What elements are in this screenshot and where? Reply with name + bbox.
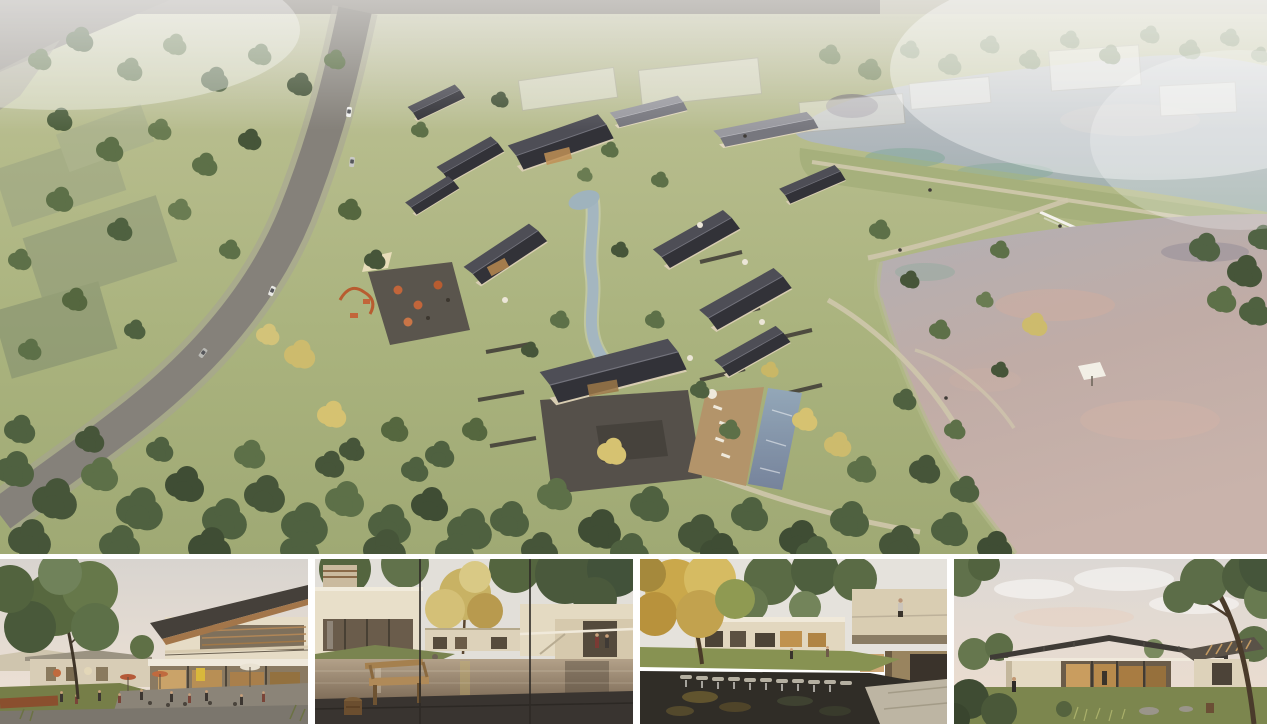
wooden-stool xyxy=(344,697,362,715)
presentation-board xyxy=(0,0,1267,724)
walking-person xyxy=(1012,677,1016,692)
aerial-view-panel xyxy=(0,0,1267,554)
yellow-sign xyxy=(196,668,205,681)
street-cafe-image xyxy=(0,559,308,724)
garden-pond-image xyxy=(640,559,947,724)
small-tree xyxy=(130,635,154,659)
pavilion-panel xyxy=(954,559,1267,724)
right-buildings xyxy=(520,604,633,659)
interior-figure xyxy=(1102,671,1107,685)
center-buildings xyxy=(425,629,520,651)
aerial-view-image xyxy=(0,0,1267,554)
street-cafe-panel xyxy=(0,559,308,724)
tree-stump xyxy=(1206,703,1214,713)
reflecting-pool-image xyxy=(315,559,633,724)
reflecting-pool-panel xyxy=(315,559,633,724)
thumbnail-row xyxy=(0,559,1267,724)
pink-cloud xyxy=(1014,607,1134,627)
garden-pond-panel xyxy=(640,559,947,724)
pavilion-image xyxy=(954,559,1267,724)
balcony-person xyxy=(898,598,903,617)
